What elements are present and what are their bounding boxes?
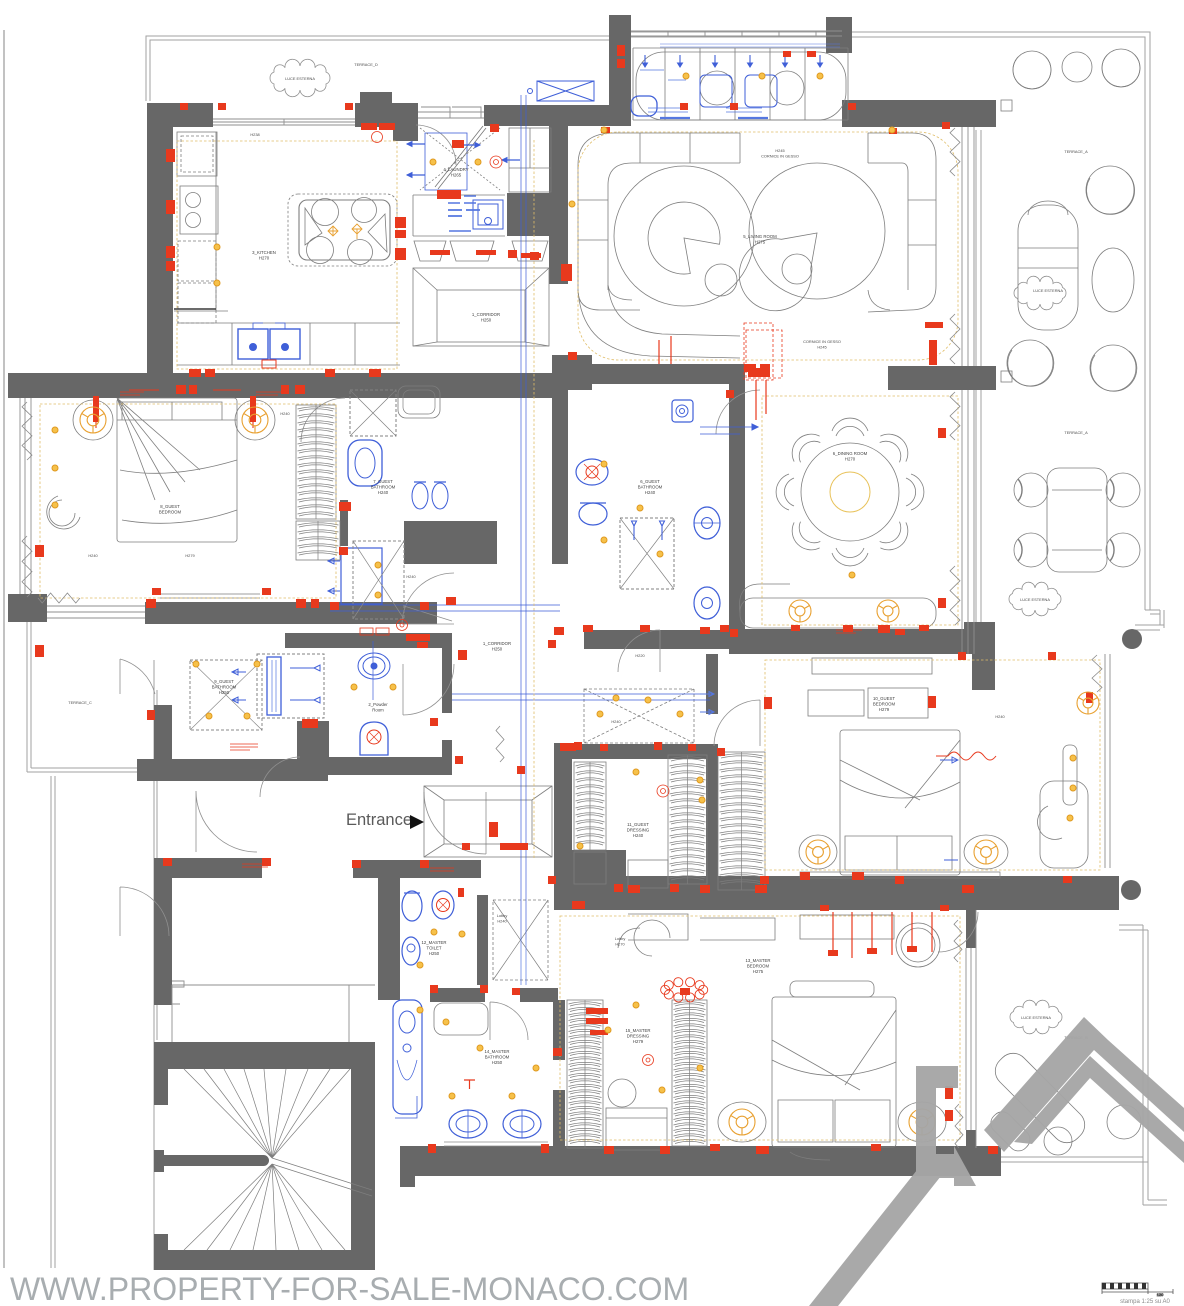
svg-text:BATHROOM: BATHROOM [212,685,237,690]
svg-text:H245: H245 [817,345,826,350]
svg-text:H245: H245 [775,148,784,153]
svg-text:H250: H250 [429,951,440,956]
svg-text:TERRACE_A: TERRACE_A [1064,149,1088,154]
svg-text:Lobby: Lobby [497,913,508,918]
svg-text:H250: H250 [481,318,492,323]
svg-text:14_MASTER: 14_MASTER [484,1049,509,1054]
svg-text:H250: H250 [492,647,503,652]
svg-text:H270: H270 [615,942,625,947]
svg-text:H250: H250 [492,1060,503,1065]
svg-text:LUCE ESTERNA: LUCE ESTERNA [1021,1015,1051,1020]
svg-text:Lobby: Lobby [615,936,626,941]
svg-text:H238: H238 [250,132,259,137]
svg-text:11_GUEST: 11_GUEST [627,822,649,827]
svg-text:1_CORRIDOR: 1_CORRIDOR [472,312,500,317]
svg-text:BATHROOM: BATHROOM [371,485,396,490]
svg-text:TERRACE_D: TERRACE_D [354,62,378,67]
svg-text:CORNICE IN GESSO: CORNICE IN GESSO [761,154,799,159]
svg-text:15_MASTER: 15_MASTER [625,1028,650,1033]
svg-text:H250: H250 [219,690,230,695]
svg-text:H279: H279 [185,553,194,558]
svg-text:H275: H275 [755,240,766,245]
svg-text:TERRACE_C: TERRACE_C [68,700,92,705]
svg-text:Entrance: Entrance [346,811,412,829]
svg-text:LUCE ESTERNA: LUCE ESTERNA [285,76,315,81]
svg-text:DRESSING: DRESSING [627,828,650,833]
svg-text:H270: H270 [845,457,856,462]
svg-text:H270: H270 [259,256,270,261]
svg-text:6_DINING ROOM: 6_DINING ROOM [833,451,868,456]
svg-text:12_MASTER: 12_MASTER [421,940,446,945]
svg-text:9_GUEST: 9_GUEST [214,679,234,684]
svg-text:H240: H240 [995,714,1005,719]
svg-text:7_GUEST: 7_GUEST [373,479,393,484]
svg-text:CORNICE IN GESSO: CORNICE IN GESSO [803,339,841,344]
svg-text:H240: H240 [633,833,644,838]
svg-text:BEDROOM: BEDROOM [873,702,896,707]
svg-text:H265: H265 [451,173,462,178]
svg-text:H279: H279 [633,1039,644,1044]
svg-text:LUCE ESTERNA: LUCE ESTERNA [1033,288,1063,293]
svg-text:stampa 1:25 su A0: stampa 1:25 su A0 [1120,1299,1170,1305]
svg-text:1_CORRIDOR: 1_CORRIDOR [483,641,511,646]
svg-text:H240: H240 [280,411,290,416]
svg-text:H240: H240 [645,490,656,495]
svg-text:DRESSING: DRESSING [627,1034,650,1039]
svg-text:LUCE ESTERNA: LUCE ESTERNA [1020,597,1050,602]
svg-text:TERRACE_A: TERRACE_A [1064,430,1088,435]
svg-text:2_Powder: 2_Powder [368,702,388,707]
svg-text:BATHROOM: BATHROOM [638,485,663,490]
svg-text:H279: H279 [879,707,890,712]
svg-text:4_LAUNDRY: 4_LAUNDRY [443,167,468,172]
svg-text:6_GUEST: 6_GUEST [640,479,660,484]
svg-text:H275: H275 [753,969,764,974]
svg-text:3_KITCHEN: 3_KITCHEN [252,250,276,255]
svg-text:H240: H240 [497,919,507,924]
svg-text:WWW.PROPERTY-FOR-SALE-MONACO.C: WWW.PROPERTY-FOR-SALE-MONACO.COM [10,1271,689,1306]
svg-text:H240: H240 [378,490,389,495]
svg-text:BEDROOM: BEDROOM [159,510,182,515]
svg-text:10_GUEST: 10_GUEST [873,696,895,701]
svg-text:TOILET: TOILET [427,946,442,951]
svg-text:8_GUEST: 8_GUEST [160,504,180,509]
svg-text:H240: H240 [88,553,98,558]
svg-text:120: 120 [1157,1292,1164,1297]
svg-text:BATHROOM: BATHROOM [485,1055,510,1060]
svg-text:BEDROOM: BEDROOM [747,964,770,969]
svg-text:5_LIVING ROOM: 5_LIVING ROOM [743,234,777,239]
svg-text:Room: Room [372,708,384,713]
svg-text:13_MASTER: 13_MASTER [745,958,770,963]
svg-text:H240: H240 [611,719,621,724]
svg-text:H240: H240 [406,574,416,579]
svg-text:H220: H220 [635,653,645,658]
